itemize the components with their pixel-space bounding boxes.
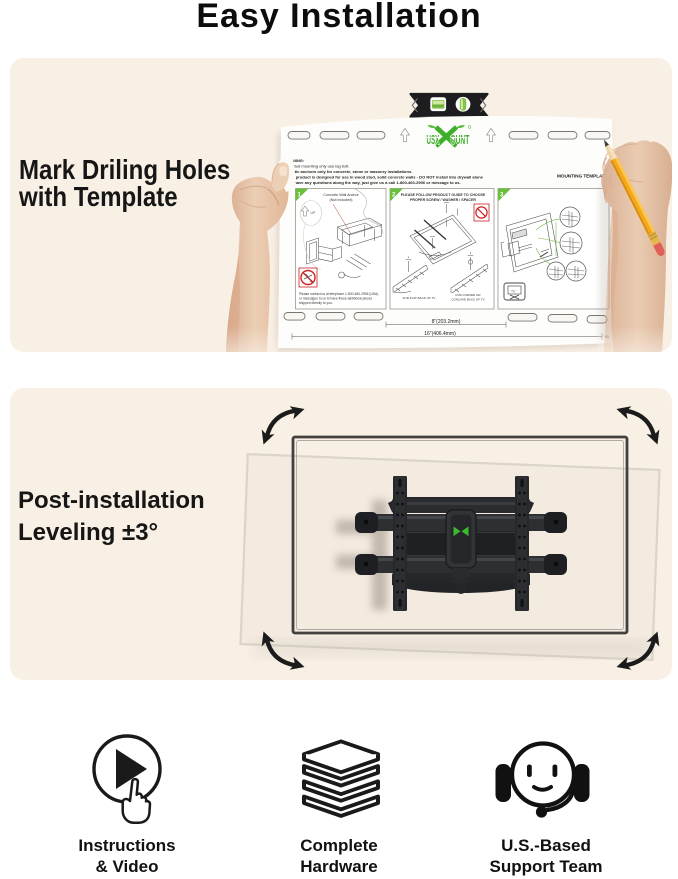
svg-text:3.The product is designed for: 3.The product is designed for use in woo… [284, 174, 484, 179]
svg-text:PLEASE FOLLOW PRODUCT GUIDE TO: PLEASE FOLLOW PRODUCT GUIDE TO CHOOSE [401, 193, 486, 197]
svg-text:16"(406.4mm): 16"(406.4mm) [424, 331, 456, 337]
svg-text:FOR CURVED OR: FOR CURVED OR [455, 293, 481, 297]
svg-text:2.Plastic anchors only for con: 2.Plastic anchors only for concrete, sto… [283, 169, 412, 174]
svg-text:OUNT: OUNT [451, 134, 470, 148]
svg-text:PROPER SCREW / WASHER / SPACER: PROPER SCREW / WASHER / SPACER [410, 198, 476, 202]
svg-text:shipped directly to you.: shipped directly to you. [299, 301, 333, 305]
svg-text:or messages to us to have thes: or messages to us to have these addition… [299, 296, 372, 300]
svg-text:MOUNTING TEMPLATE: MOUNTING TEMPLATE [557, 173, 608, 178]
svg-text:CONCAVE BACK OF TV: CONCAVE BACK OF TV [451, 297, 484, 301]
svg-text:FOR FLAT BACK OF TV: FOR FLAT BACK OF TV [403, 296, 436, 300]
svg-text:you have any questions along t: you have any questions along the way, ju… [286, 180, 461, 185]
svg-text:UP: UP [311, 211, 316, 215]
svg-text:TV: TV [511, 290, 516, 294]
svg-text:(Not included): (Not included) [330, 198, 353, 202]
svg-text:8"(203.2mm): 8"(203.2mm) [432, 319, 461, 325]
svg-text:Please contact us at telephone: Please contact us at telephone 1-800-460… [299, 292, 378, 296]
svg-text:USX: USX [427, 134, 440, 148]
svg-text:Concrete Wall Anchor: Concrete Wall Anchor [323, 193, 359, 197]
